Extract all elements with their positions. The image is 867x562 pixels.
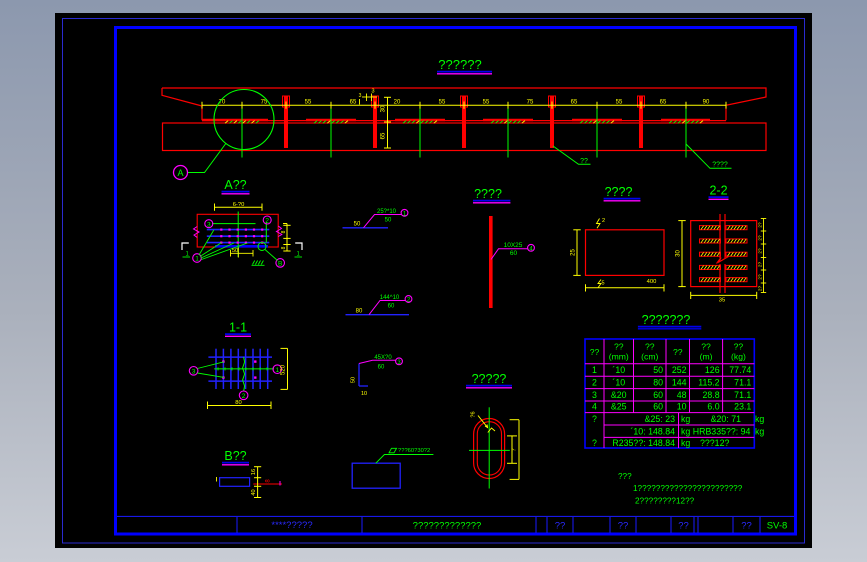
svg-text:2?: 2? bbox=[758, 235, 763, 241]
svg-text:30: 30 bbox=[676, 250, 682, 257]
svg-text:60: 60 bbox=[388, 304, 395, 310]
svg-text:71.1: 71.1 bbox=[734, 378, 751, 388]
svg-text:2: 2 bbox=[265, 218, 269, 225]
svg-text:80: 80 bbox=[653, 378, 663, 388]
svg-text:A: A bbox=[177, 168, 183, 178]
svg-text:??: ?? bbox=[645, 342, 655, 352]
svg-text:??: ?? bbox=[580, 158, 588, 165]
svg-text:71.1: 71.1 bbox=[734, 390, 751, 400]
svg-text:2?: 2? bbox=[758, 262, 763, 268]
svg-text:&20: 71: &20: 71 bbox=[711, 414, 741, 424]
svg-text:A??: A?? bbox=[224, 178, 246, 192]
svg-text:25: 25 bbox=[571, 249, 577, 256]
svg-text:1???????????????????????: 1??????????????????????? bbox=[633, 484, 743, 493]
svg-text:2: 2 bbox=[602, 218, 605, 224]
svg-text:55: 55 bbox=[305, 100, 312, 106]
svg-text:30: 30 bbox=[381, 105, 387, 112]
svg-text:????: ???? bbox=[605, 185, 633, 199]
svg-text:6-?0: 6-?0 bbox=[233, 202, 245, 208]
svg-text:40: 40 bbox=[251, 489, 257, 495]
svg-text:65: 65 bbox=[571, 100, 578, 106]
svg-text:5: 5 bbox=[601, 281, 604, 287]
svg-text:´10: 148.84: ´10: 148.84 bbox=[630, 427, 675, 437]
svg-text:?????????????: ????????????? bbox=[413, 521, 482, 532]
svg-text:50: 50 bbox=[354, 222, 361, 228]
svg-text:kg: kg bbox=[681, 438, 690, 448]
svg-text:??????: ?????? bbox=[438, 57, 481, 72]
svg-text:(m): (m) bbox=[700, 352, 713, 362]
svg-text:60: 60 bbox=[378, 365, 385, 371]
svg-text:55: 55 bbox=[483, 100, 490, 106]
svg-text:10X25: 10X25 bbox=[504, 242, 523, 249]
svg-text:´10: ´10 bbox=[612, 365, 625, 375]
svg-text:??: ?? bbox=[555, 521, 566, 532]
svg-text:???: ??? bbox=[618, 472, 632, 481]
svg-text:??: ?? bbox=[673, 347, 683, 357]
svg-text:50: 50 bbox=[385, 218, 392, 224]
svg-text:1-1: 1-1 bbox=[229, 321, 247, 335]
svg-text:16: 16 bbox=[251, 469, 257, 475]
svg-text:20: 20 bbox=[394, 100, 401, 106]
svg-text:55: 55 bbox=[439, 100, 446, 106]
svg-text:&25: 23: &25: 23 bbox=[645, 414, 675, 424]
svg-text:8: 8 bbox=[281, 246, 287, 249]
svg-text:??: ?? bbox=[734, 342, 744, 352]
svg-text:1: 1 bbox=[592, 365, 597, 375]
svg-text:144^10: 144^10 bbox=[380, 295, 400, 301]
svg-text:80: 80 bbox=[356, 309, 363, 315]
svg-text:2?: 2? bbox=[758, 274, 763, 280]
svg-text:4: 4 bbox=[592, 402, 597, 412]
svg-text:6.0: 6.0 bbox=[707, 402, 719, 412]
svg-text:50: 50 bbox=[351, 377, 357, 383]
svg-text:65: 65 bbox=[381, 132, 387, 139]
svg-text:115.2: 115.2 bbox=[698, 378, 719, 388]
svg-text:SV-8: SV-8 bbox=[767, 521, 788, 532]
svg-text:45X?0: 45X?0 bbox=[374, 355, 392, 361]
svg-text:50: 50 bbox=[232, 248, 238, 254]
svg-text:126: 126 bbox=[705, 365, 720, 375]
svg-text:??: ?? bbox=[741, 521, 752, 532]
svg-text:400: 400 bbox=[647, 279, 657, 285]
svg-text:10: 10 bbox=[677, 402, 687, 412]
svg-text:??: ?? bbox=[701, 342, 711, 352]
svg-text:????: ???? bbox=[474, 187, 502, 201]
svg-text:****?????: ****????? bbox=[271, 520, 312, 531]
svg-text:77.74: 77.74 bbox=[729, 365, 751, 375]
svg-text:??: ?? bbox=[618, 521, 629, 532]
svg-text:60: 60 bbox=[510, 250, 518, 257]
svg-text:1: 1 bbox=[195, 256, 199, 263]
svg-text:(kg): (kg) bbox=[731, 352, 746, 362]
svg-text:kg: kg bbox=[681, 414, 690, 424]
svg-text:kg: kg bbox=[755, 414, 764, 424]
svg-text:?6: ?6 bbox=[471, 411, 477, 417]
svg-text:55: 55 bbox=[616, 100, 623, 106]
svg-text:2?: 2? bbox=[758, 222, 763, 228]
svg-text:1: 1 bbox=[275, 367, 279, 374]
svg-text:3: 3 bbox=[371, 89, 374, 95]
svg-text:´10: ´10 bbox=[612, 378, 625, 388]
svg-text:80: 80 bbox=[235, 400, 241, 406]
svg-text:3: 3 bbox=[207, 221, 211, 228]
svg-text:(mm): (mm) bbox=[609, 352, 629, 362]
svg-text:???60?30?2: ???60?30?2 bbox=[398, 448, 430, 454]
svg-text:23.1: 23.1 bbox=[734, 402, 751, 412]
svg-text:60: 60 bbox=[653, 390, 663, 400]
svg-text:?: ? bbox=[512, 448, 518, 451]
svg-text:2?: 2? bbox=[758, 248, 763, 254]
svg-text:&20: &20 bbox=[611, 390, 627, 400]
svg-text:??: ?? bbox=[590, 347, 600, 357]
svg-text:8: 8 bbox=[281, 230, 287, 233]
svg-text:???12?: ???12? bbox=[700, 438, 729, 448]
svg-text:kg HRB335??: 94: kg HRB335??: 94 bbox=[681, 427, 751, 437]
svg-text:(cm): (cm) bbox=[641, 352, 658, 362]
svg-text:2: 2 bbox=[242, 393, 246, 400]
svg-text:75: 75 bbox=[527, 100, 534, 106]
svg-text:144: 144 bbox=[672, 378, 687, 388]
svg-text:B??: B?? bbox=[224, 449, 246, 463]
svg-text:3: 3 bbox=[592, 390, 597, 400]
svg-text:25?*10: 25?*10 bbox=[377, 209, 397, 215]
svg-text:2-2: 2-2 bbox=[709, 184, 727, 198]
svg-text:R235??: 148.84: R235??: 148.84 bbox=[612, 438, 675, 448]
svg-text:2: 2 bbox=[592, 378, 597, 388]
svg-text:28.8: 28.8 bbox=[702, 390, 719, 400]
svg-text:65: 65 bbox=[660, 100, 667, 106]
svg-text:?: ? bbox=[592, 438, 597, 448]
svg-text:2????????12??: 2????????12?? bbox=[635, 497, 695, 506]
svg-text:2?: 2? bbox=[758, 286, 763, 292]
svg-text:48: 48 bbox=[677, 390, 687, 400]
svg-text:252: 252 bbox=[672, 365, 687, 375]
svg-text:??: ?? bbox=[614, 342, 624, 352]
svg-text:3: 3 bbox=[359, 93, 362, 99]
svg-text:10: 10 bbox=[361, 391, 367, 397]
svg-text:65: 65 bbox=[350, 100, 357, 106]
svg-text:???????: ??????? bbox=[642, 313, 691, 327]
svg-text:??: ?? bbox=[678, 521, 689, 532]
svg-text:50: 50 bbox=[653, 365, 663, 375]
svg-text:35: 35 bbox=[719, 298, 725, 304]
svg-text:?: ? bbox=[592, 414, 597, 424]
svg-text:60: 60 bbox=[653, 402, 663, 412]
svg-text:kg: kg bbox=[755, 427, 764, 437]
svg-text:?????: ????? bbox=[472, 372, 507, 386]
svg-text:&25: &25 bbox=[611, 402, 627, 412]
svg-text:B: B bbox=[278, 261, 282, 268]
svg-text:????: ???? bbox=[712, 162, 728, 169]
svg-text:3: 3 bbox=[192, 369, 196, 376]
svg-text:90: 90 bbox=[703, 100, 710, 106]
svg-text:520: 520 bbox=[281, 364, 287, 375]
